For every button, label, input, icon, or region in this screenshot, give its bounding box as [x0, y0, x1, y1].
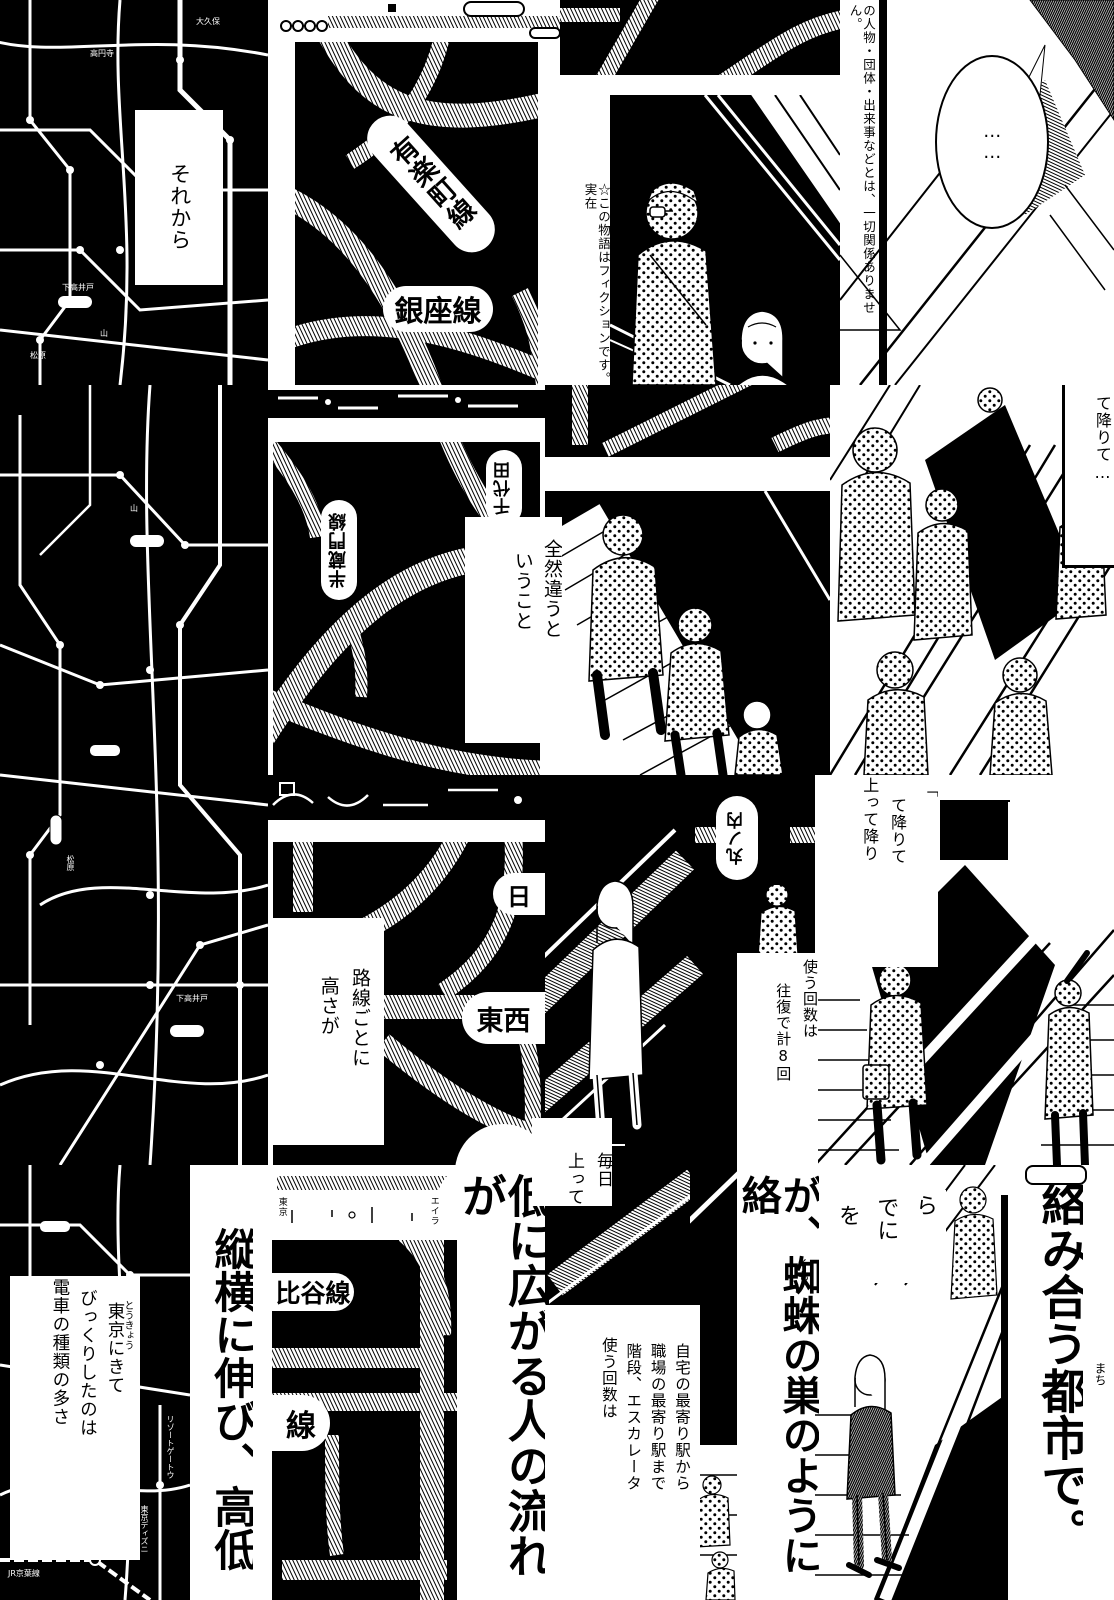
- caption-kaidan-1: 「: [920, 781, 938, 967]
- caption-box-fragment: ら でに を: [838, 1190, 946, 1283]
- panel-subway-map-2: 山 松原 下高井戸: [0, 385, 268, 1165]
- manga-collage-page: 大久保 高円寺 下高井戸 松原 山 それから 有楽町線: [0, 0, 1114, 1600]
- caption-mainichi-2: 上って: [564, 1152, 583, 1206]
- line-capsule-marunouchi: 丸ノ内: [716, 796, 758, 880]
- map-fragment-2-art: [268, 775, 545, 820]
- caption-frag-2: でに: [873, 1196, 898, 1283]
- map-station-label: 高円寺: [90, 50, 114, 58]
- caption-zenzen-1: 全然違うと: [541, 539, 562, 743]
- caption-box-te-orite: て降りて…: [1062, 385, 1114, 568]
- furigana-kumo: くも: [797, 1258, 809, 1282]
- caption-jitaku-3: 階段、エスカレータ: [624, 1343, 641, 1600]
- panel-escalator-bubble: ……: [840, 0, 1114, 385]
- line-capsule-hibiya-start: 日: [493, 873, 545, 915]
- caption-fiction-disclaimer-1: ☆この物語はフィクションです。実在: [583, 183, 610, 389]
- caption-box-tokyo: 東京にきて びっくりしたのは 電車の種類の多さ: [10, 1276, 140, 1560]
- panel-big-text-1: 縦横に伸び、高低: [190, 1165, 272, 1600]
- map-fragment-art: [268, 390, 545, 418]
- caption-te-orite: て降りて…: [1093, 395, 1111, 565]
- line-label-hanzomon: 半蔵門線: [330, 512, 348, 588]
- caption-ofuku-2: 往復で計8回: [774, 983, 791, 1165]
- speech-bubble-silence: ……: [935, 55, 1049, 229]
- map-station-label: 下高井戸: [62, 284, 94, 292]
- map-tiny-label-tokyo: 東京: [276, 1197, 286, 1217]
- panel-subway-map-1: 大久保 高円寺 下高井戸 松原 山: [0, 0, 268, 385]
- big-text-3: が、蜘蛛の巣のように絡: [737, 1175, 819, 1600]
- escalator-couple-art: [610, 95, 840, 385]
- panel-map-fragment-strip-1: [268, 390, 545, 418]
- panel-tube-lines-1: [295, 42, 538, 385]
- map-station-label: 山: [130, 505, 138, 513]
- line-label-tozai: 東西: [477, 999, 531, 1038]
- caption-rosen-1: 路線ごとに: [349, 968, 370, 1145]
- caption-box-jitaku: 自宅の最寄り駅から 職場の最寄り駅まで 階段、エスカレータ 使う回数は: [545, 1305, 700, 1600]
- big-text-1: 縦横に伸び、高低: [209, 1227, 253, 1600]
- furigana-machi: まち: [1094, 1362, 1106, 1386]
- panel-map-fragment-strip-2: [268, 775, 545, 820]
- map-tiny-label-eira: エイラ: [428, 1196, 438, 1226]
- caption-box-ofuku: 使う回数は 往復で計8回: [737, 953, 818, 1165]
- panel-tube-strip: [560, 0, 840, 75]
- map-station-label: 東京ディズニ: [140, 1505, 148, 1553]
- panel-escalator-couple: [610, 95, 840, 385]
- caption-mainichi-1: 毎日: [593, 1152, 612, 1206]
- map-station-label: 松原: [30, 352, 46, 360]
- map-station-label: 大久保: [196, 18, 220, 26]
- caption-kaidan-3: 上って降り: [860, 777, 878, 967]
- caption-kaidan-2: て降りて: [888, 797, 906, 967]
- panel-tube-lines-4: [272, 1165, 457, 1600]
- caption-tokyo-2: びっくりしたのは: [77, 1289, 97, 1560]
- caption-jitaku-1: 自宅の最寄り駅から: [673, 1343, 690, 1600]
- caption-box-sorekara: それから: [135, 110, 223, 285]
- map-station-label: リゾートゲートウ: [166, 1415, 174, 1479]
- panel-border-bar: [879, 0, 887, 385]
- panel-stair-climbers: [545, 385, 830, 775]
- map-station-label: 下高井戸: [176, 995, 208, 1003]
- furigana-tokyo: とうきょう: [122, 1300, 132, 1350]
- caption-tokyo-3: 電車の種類の多さ: [49, 1278, 69, 1560]
- stair-climbers-art: [545, 385, 830, 775]
- line-capsule-sen: 線: [272, 1395, 330, 1451]
- line-label-chiyoda: 千代田: [496, 461, 513, 515]
- caption-sorekara: それから: [167, 163, 191, 251]
- caption-rosen-2: 高さが: [317, 976, 338, 1145]
- caption-box-mainichi: 毎日 上って: [532, 1118, 612, 1206]
- caption-fiction-disclaimer-2: の人物・団体・出来事などとは、一切関係ありません。: [848, 4, 875, 334]
- capsule-fragment-top: [1025, 1165, 1087, 1185]
- panel-big-text-3: が、蜘蛛の巣のように絡: [737, 1165, 815, 1600]
- caption-ofuku-1: 使う回数は: [801, 959, 818, 1165]
- tube-strip-art: [560, 0, 840, 75]
- line-label-ginza: 銀座線: [394, 288, 481, 330]
- blank-caption-box: [1008, 802, 1114, 870]
- map-station-label: JR京葉線: [8, 1570, 40, 1578]
- panel-map-edge-strip: [268, 0, 560, 42]
- tube-lines-art: [295, 42, 538, 385]
- line-capsule-hibiya-rest: 比谷線: [272, 1273, 354, 1311]
- panel-big-text-2: 低に広がる人の流れが: [457, 1165, 545, 1600]
- panel-rule: [1001, 1195, 1008, 1600]
- caption-box-kaidan: 「 て降りて 上って降り: [818, 775, 938, 967]
- caption-jitaku-2: 職場の最寄り駅まで: [648, 1343, 665, 1600]
- subway-map-2-art: [0, 385, 268, 1165]
- caption-box-rosen: 路線ごとに 高さが: [270, 918, 384, 1145]
- line-capsule-tozai: 東西: [462, 992, 545, 1044]
- big-text-2: 低に広がる人の流れが: [457, 1173, 549, 1600]
- map-station-label: 山: [100, 330, 108, 338]
- caption-frag-1: ら: [911, 1194, 936, 1283]
- caption-zenzen-2: いうこと: [511, 551, 532, 743]
- line-capsule-hanzomon: 半蔵門線: [321, 500, 357, 600]
- map-edge-art: [268, 0, 560, 42]
- caption-jitaku-4: 使う回数は: [600, 1337, 617, 1600]
- speech-bubble-text: ……: [982, 121, 1001, 163]
- caption-box-zenzen: 全然違うと いうこと: [465, 517, 562, 743]
- map-station-label: 松原: [66, 855, 74, 871]
- line-label-marunouchi: 丸ノ内: [729, 811, 746, 865]
- line-capsule-chiyoda: 千代田: [486, 450, 522, 526]
- line-label-sen: 線: [286, 1401, 316, 1445]
- big-text-4: 絡み合う都市で。: [1036, 1179, 1084, 1600]
- line-capsule-ginza: 銀座線: [383, 286, 493, 332]
- line-label-hibiya-rest: 比谷線: [275, 1274, 350, 1310]
- caption-frag-3: を: [838, 1204, 859, 1283]
- line-label-hibiya-start: 日: [507, 877, 531, 912]
- subway-map-art: [0, 0, 268, 385]
